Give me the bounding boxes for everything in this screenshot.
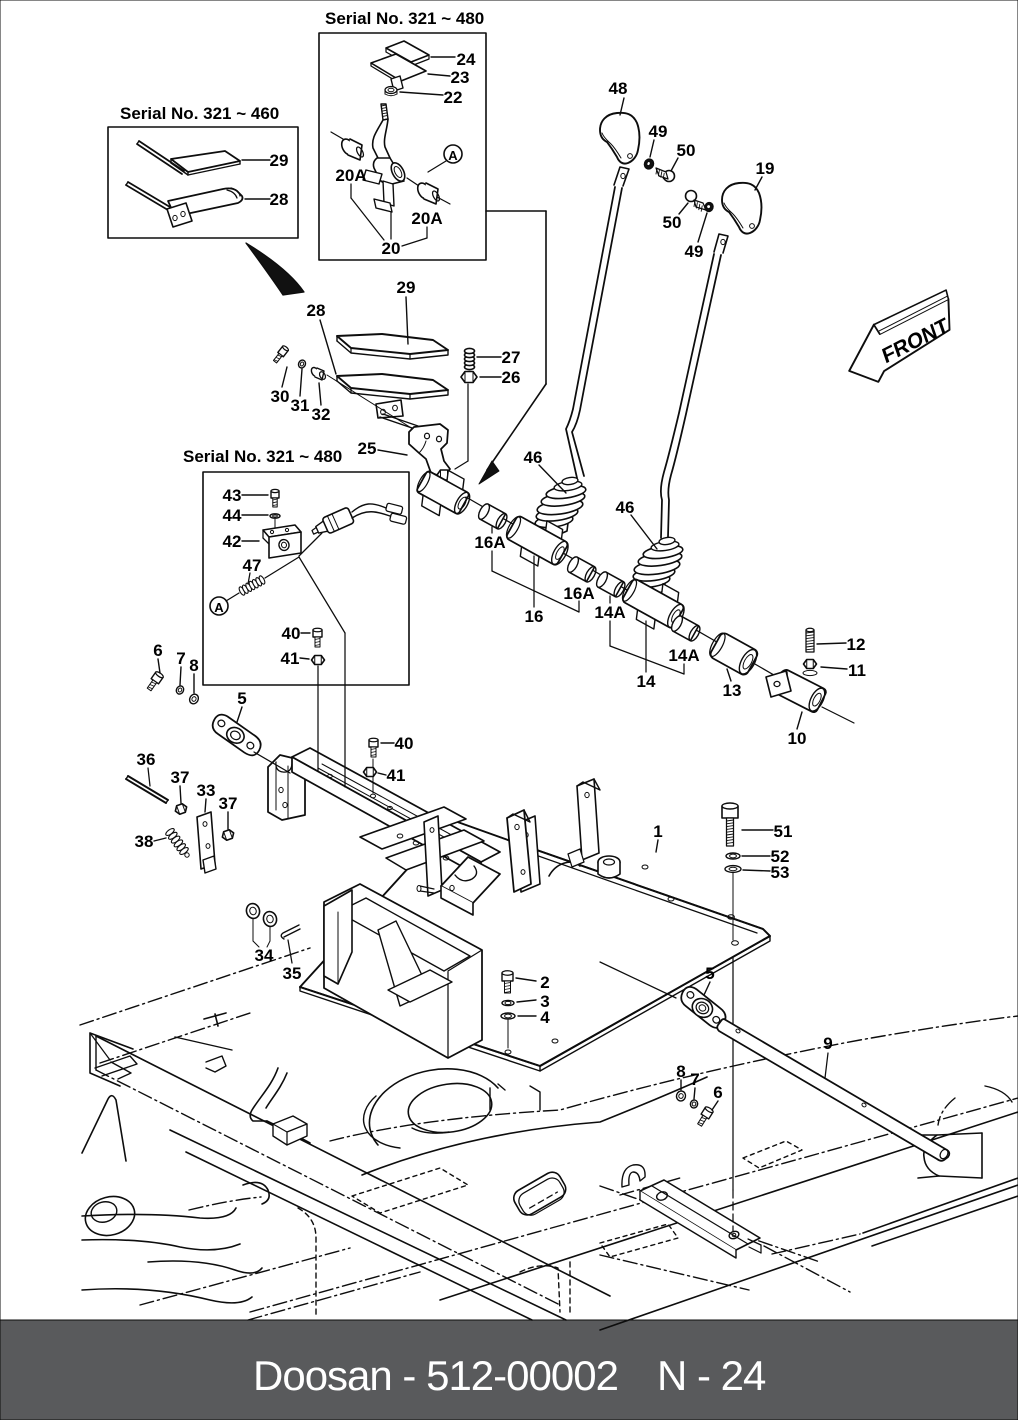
svg-text:38: 38 xyxy=(135,832,154,851)
svg-text:29: 29 xyxy=(397,278,416,297)
svg-text:14: 14 xyxy=(637,672,656,691)
svg-text:12: 12 xyxy=(847,635,866,654)
svg-text:8: 8 xyxy=(189,656,198,675)
svg-text:14A: 14A xyxy=(594,603,625,622)
svg-text:Serial No. 321 ~ 480: Serial No. 321 ~ 480 xyxy=(183,447,342,466)
svg-text:16A: 16A xyxy=(474,533,505,552)
svg-text:23: 23 xyxy=(451,68,470,87)
svg-text:30: 30 xyxy=(271,387,290,406)
svg-text:46: 46 xyxy=(616,498,635,517)
svg-text:20A: 20A xyxy=(411,209,442,228)
svg-text:1: 1 xyxy=(653,822,662,841)
svg-text:42: 42 xyxy=(223,532,242,551)
svg-text:Serial No. 321 ~ 460: Serial No. 321 ~ 460 xyxy=(120,104,279,123)
svg-text:50: 50 xyxy=(663,213,682,232)
svg-text:33: 33 xyxy=(197,781,216,800)
svg-text:6: 6 xyxy=(153,641,162,660)
svg-text:4: 4 xyxy=(540,1008,550,1027)
svg-text:37: 37 xyxy=(219,794,238,813)
svg-text:47: 47 xyxy=(243,556,262,575)
svg-text:27: 27 xyxy=(502,348,521,367)
svg-text:A: A xyxy=(214,600,224,615)
svg-text:A: A xyxy=(448,148,458,163)
svg-text:8: 8 xyxy=(676,1062,685,1081)
svg-text:44: 44 xyxy=(223,506,242,525)
svg-text:31: 31 xyxy=(291,396,310,415)
svg-text:26: 26 xyxy=(502,368,521,387)
svg-text:13: 13 xyxy=(723,681,742,700)
svg-text:Serial No. 321 ~ 480: Serial No. 321 ~ 480 xyxy=(325,9,484,28)
svg-text:11: 11 xyxy=(848,661,866,680)
svg-text:6: 6 xyxy=(713,1083,722,1102)
svg-text:14A: 14A xyxy=(668,646,699,665)
svg-text:7: 7 xyxy=(176,649,185,668)
svg-text:28: 28 xyxy=(307,301,326,320)
svg-text:16A: 16A xyxy=(563,584,594,603)
svg-text:7: 7 xyxy=(690,1070,699,1089)
svg-text:49: 49 xyxy=(649,122,668,141)
svg-text:20: 20 xyxy=(382,239,401,258)
svg-text:2: 2 xyxy=(540,973,549,992)
svg-text:51: 51 xyxy=(774,822,793,841)
svg-text:N - 24: N - 24 xyxy=(657,1352,766,1399)
svg-text:19: 19 xyxy=(756,159,775,178)
svg-text:20A: 20A xyxy=(335,166,366,185)
svg-text:25: 25 xyxy=(358,439,377,458)
svg-text:43: 43 xyxy=(223,486,242,505)
svg-text:9: 9 xyxy=(823,1034,832,1053)
svg-text:22: 22 xyxy=(444,88,463,107)
svg-text:32: 32 xyxy=(312,405,331,424)
svg-text:40: 40 xyxy=(282,624,301,643)
svg-text:48: 48 xyxy=(609,79,628,98)
svg-text:49: 49 xyxy=(685,242,704,261)
svg-text:28: 28 xyxy=(270,190,289,209)
svg-text:16: 16 xyxy=(525,607,544,626)
svg-text:41: 41 xyxy=(281,649,300,668)
svg-text:Doosan - 512-00002: Doosan - 512-00002 xyxy=(253,1352,618,1399)
svg-text:24: 24 xyxy=(457,50,476,69)
svg-text:29: 29 xyxy=(270,151,289,170)
svg-text:35: 35 xyxy=(283,964,302,983)
svg-text:40: 40 xyxy=(395,734,414,753)
svg-text:37: 37 xyxy=(171,768,190,787)
svg-text:5: 5 xyxy=(237,689,246,708)
svg-text:46: 46 xyxy=(524,448,543,467)
svg-text:10: 10 xyxy=(788,729,807,748)
svg-text:34: 34 xyxy=(255,946,274,965)
svg-text:41: 41 xyxy=(387,766,406,785)
svg-text:5: 5 xyxy=(705,964,714,983)
svg-text:50: 50 xyxy=(677,141,696,160)
svg-text:36: 36 xyxy=(137,750,156,769)
svg-text:53: 53 xyxy=(771,863,790,882)
